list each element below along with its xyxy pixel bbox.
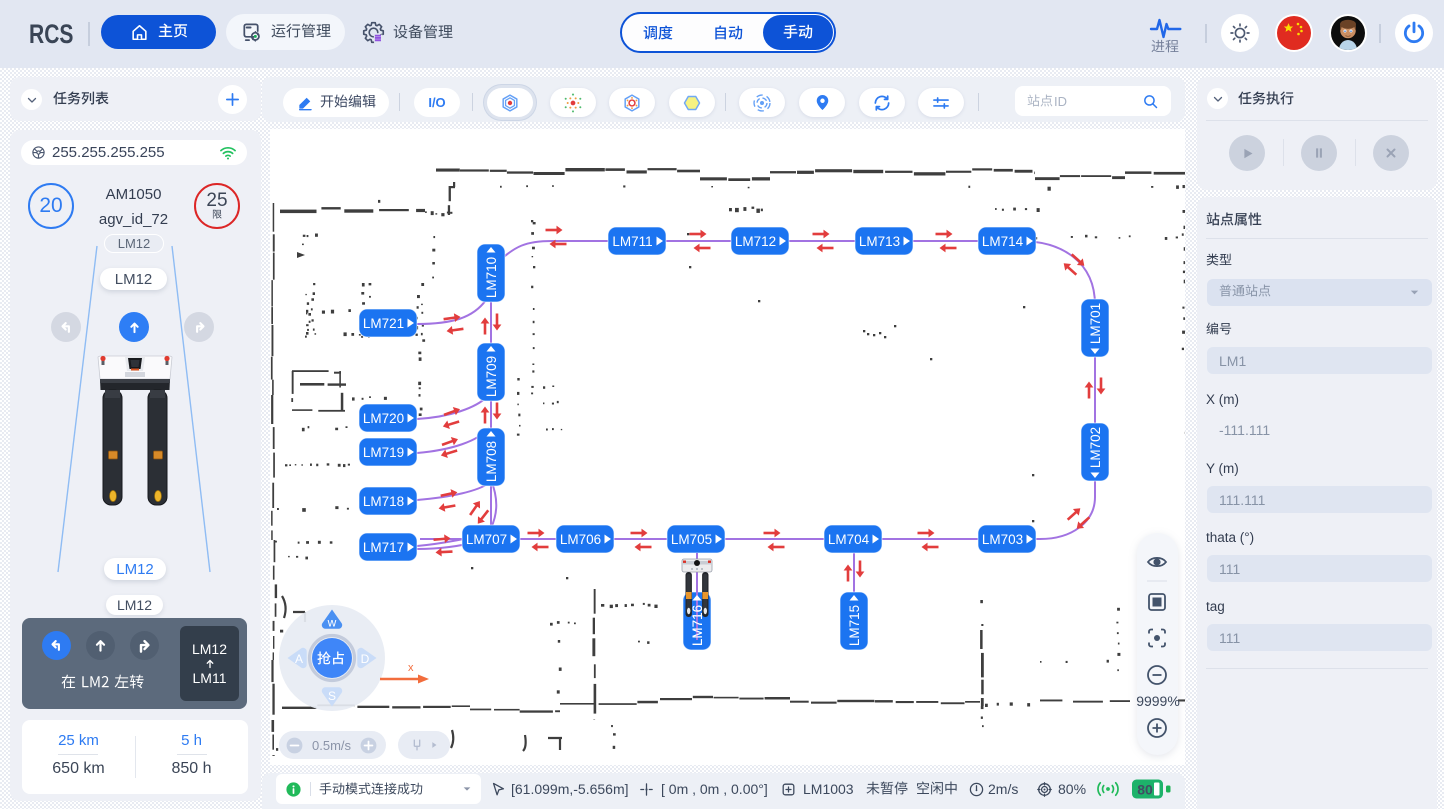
svg-text:LM709: LM709 xyxy=(484,356,499,397)
svg-text:A: A xyxy=(295,652,303,666)
svg-text:LM715: LM715 xyxy=(847,605,862,646)
svg-text:80: 80 xyxy=(1137,782,1153,798)
svg-text:LM718: LM718 xyxy=(363,494,404,509)
svg-text:LM714: LM714 xyxy=(982,234,1024,249)
svg-text:D: D xyxy=(361,652,370,666)
svg-text:LM710: LM710 xyxy=(484,257,499,298)
svg-text:LM705: LM705 xyxy=(671,532,712,547)
svg-text:LM706: LM706 xyxy=(560,532,601,547)
svg-text:LM712: LM712 xyxy=(735,234,776,249)
svg-text:LM721: LM721 xyxy=(363,316,404,331)
svg-text:x: x xyxy=(408,662,414,674)
svg-text:S: S xyxy=(328,689,336,703)
svg-text:LM717: LM717 xyxy=(363,540,404,555)
svg-text:LM713: LM713 xyxy=(859,234,900,249)
svg-text:LM711: LM711 xyxy=(612,234,652,249)
svg-text:LM707: LM707 xyxy=(466,532,507,547)
svg-text:LM704: LM704 xyxy=(828,532,870,547)
svg-text:w: w xyxy=(327,616,337,630)
svg-text:LM701: LM701 xyxy=(1088,303,1103,344)
svg-text:LM720: LM720 xyxy=(363,411,404,426)
svg-text:LM719: LM719 xyxy=(363,445,404,460)
svg-text:LM708: LM708 xyxy=(484,441,499,482)
svg-text:LM702: LM702 xyxy=(1088,427,1103,468)
svg-text:LM703: LM703 xyxy=(982,532,1023,547)
